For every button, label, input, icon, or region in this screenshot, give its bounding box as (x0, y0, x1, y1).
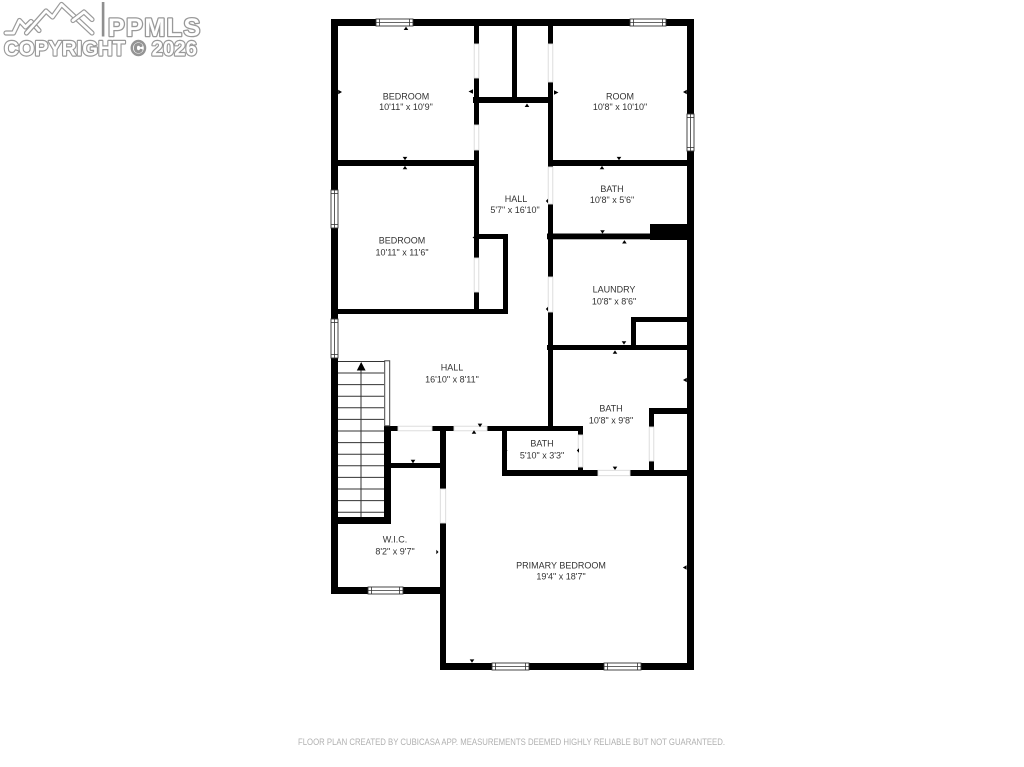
svg-text:W.I.C.: W.I.C. (383, 534, 408, 544)
svg-text:ROOM: ROOM (606, 92, 634, 102)
svg-text:BEDROOM: BEDROOM (379, 235, 426, 245)
svg-text:COPYRIGHT © 2026: COPYRIGHT © 2026 (4, 37, 197, 61)
svg-text:HALL: HALL (505, 194, 528, 204)
svg-text:10'11" x 11'6": 10'11" x 11'6" (375, 247, 428, 257)
svg-text:FLOOR PLAN CREATED BY CUBICASA: FLOOR PLAN CREATED BY CUBICASA APP. MEAS… (298, 737, 725, 747)
svg-text:BATH: BATH (600, 184, 623, 194)
svg-text:8'2" x 9'7": 8'2" x 9'7" (375, 546, 414, 556)
svg-text:BATH: BATH (530, 438, 553, 448)
svg-text:19'4" x 18'7": 19'4" x 18'7" (536, 572, 585, 582)
svg-text:HALL: HALL (441, 362, 464, 372)
svg-text:10'8" x 9'8": 10'8" x 9'8" (589, 415, 633, 425)
svg-text:10'11" x 10'9": 10'11" x 10'9" (379, 102, 433, 112)
svg-text:BEDROOM: BEDROOM (383, 92, 430, 102)
svg-text:16'10" x 8'11": 16'10" x 8'11" (425, 374, 479, 384)
svg-text:BATH: BATH (599, 403, 622, 413)
svg-text:10'8" x 10'10": 10'8" x 10'10" (593, 102, 647, 112)
svg-text:LAUNDRY: LAUNDRY (593, 284, 636, 294)
svg-text:10'8" x 8'6": 10'8" x 8'6" (592, 296, 636, 306)
svg-text:5'7" x 16'10": 5'7" x 16'10" (490, 205, 539, 215)
svg-text:PRIMARY BEDROOM: PRIMARY BEDROOM (516, 561, 606, 571)
svg-text:5'10" x 3'3": 5'10" x 3'3" (520, 450, 564, 460)
svg-text:10'8" x 5'6": 10'8" x 5'6" (590, 195, 634, 205)
